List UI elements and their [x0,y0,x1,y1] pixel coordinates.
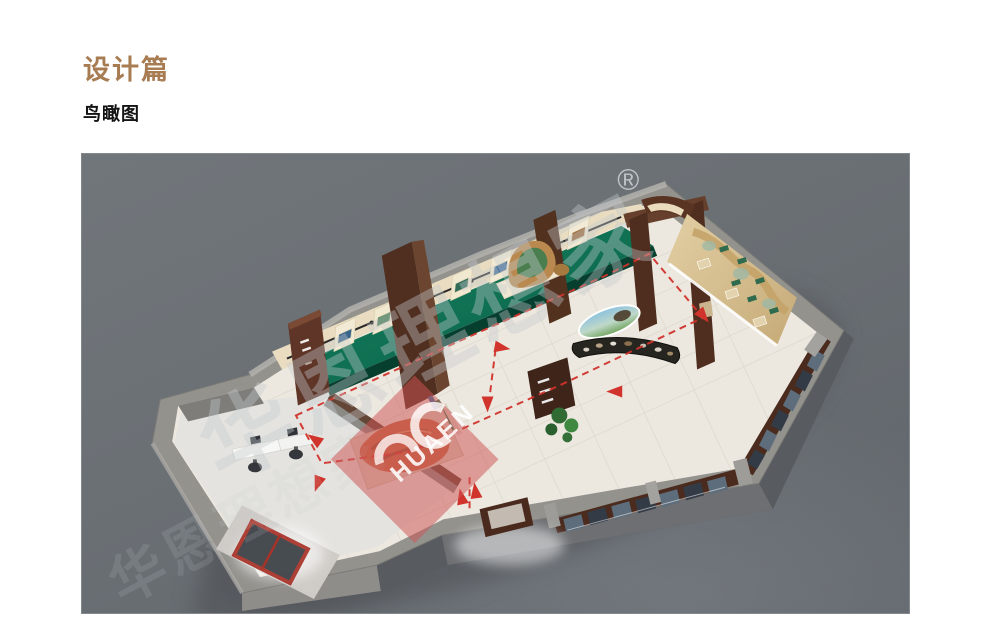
birdseye-render-panel: 华恩理想家 华恩理想家 ® HUAEN [82,154,909,613]
page-title: 鸟瞰图 [83,100,170,126]
birdseye-render: 华恩理想家 华恩理想家 ® HUAEN [82,154,909,613]
registered-mark: ® [617,164,639,197]
section-title: 设计篇 [83,54,170,86]
page-header: 设计篇 鸟瞰图 [83,54,170,126]
